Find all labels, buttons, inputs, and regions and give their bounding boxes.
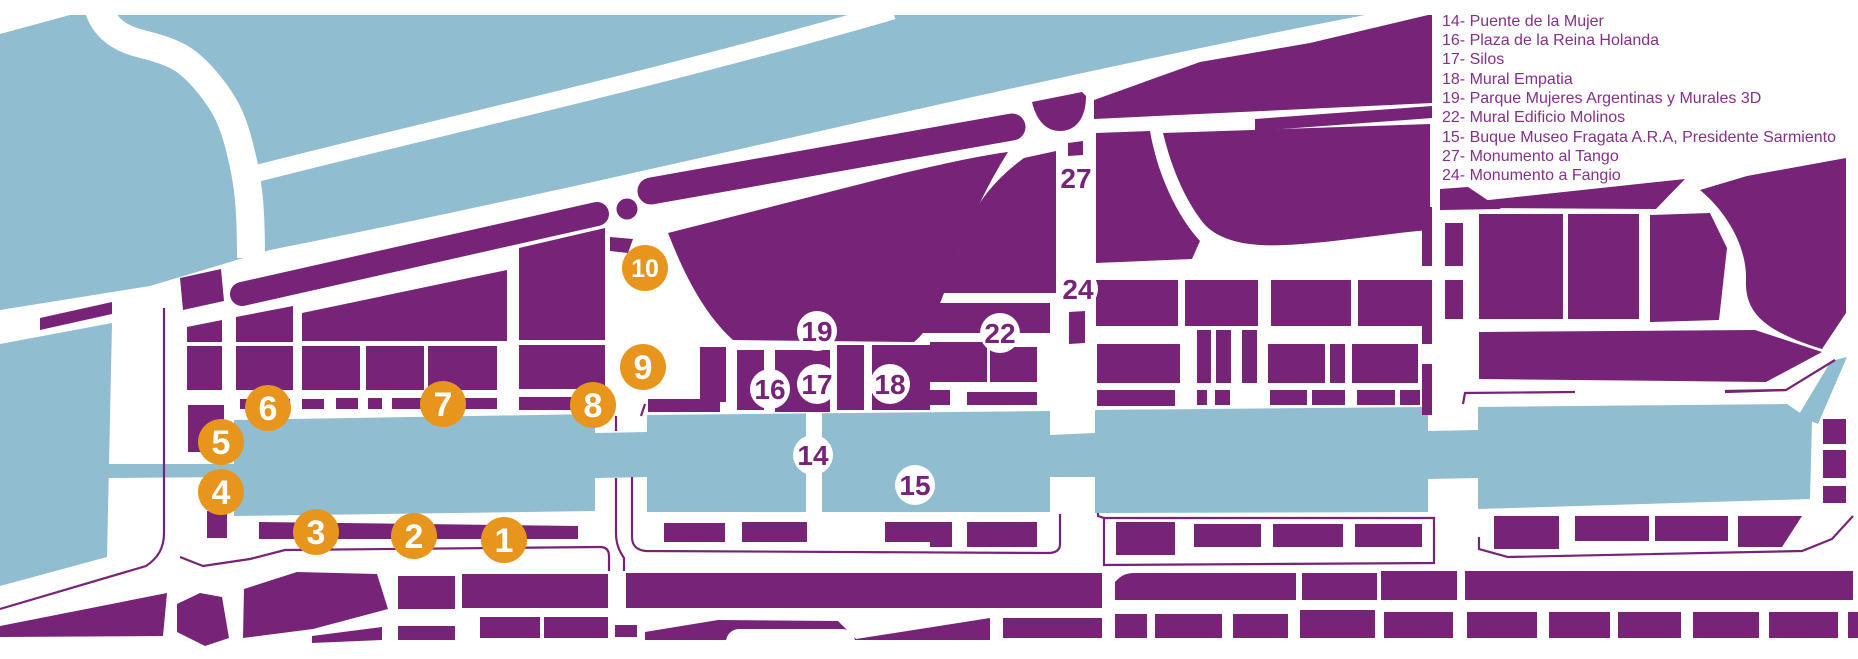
svg-text:5: 5 <box>212 424 231 462</box>
svg-text:27: 27 <box>1060 163 1091 194</box>
svg-text:10: 10 <box>631 255 659 283</box>
svg-text:6: 6 <box>259 390 278 428</box>
svg-text:7: 7 <box>434 386 453 424</box>
svg-text:17: 17 <box>801 369 832 400</box>
svg-text:16: 16 <box>754 374 785 405</box>
svg-text:14- Puente de la Mujer: 14- Puente de la Mujer <box>1442 13 1605 30</box>
svg-text:17- Silos: 17- Silos <box>1442 51 1504 68</box>
svg-text:1: 1 <box>495 522 514 560</box>
svg-text:2: 2 <box>405 518 424 556</box>
svg-text:27- Monumento al Tango: 27- Monumento al Tango <box>1442 148 1619 165</box>
svg-text:16- Plaza de la Reina Holanda: 16- Plaza de la Reina Holanda <box>1442 32 1659 49</box>
svg-text:24- Monumento a Fangio: 24- Monumento a Fangio <box>1442 167 1621 184</box>
svg-text:19: 19 <box>801 316 832 347</box>
svg-text:24: 24 <box>1062 274 1094 305</box>
svg-text:15- Buque Museo Fragata A.R.A,: 15- Buque Museo Fragata A.R.A, President… <box>1442 129 1836 146</box>
svg-text:14: 14 <box>797 440 829 471</box>
svg-text:8: 8 <box>584 387 603 425</box>
svg-text:3: 3 <box>307 514 326 552</box>
svg-text:15: 15 <box>899 470 930 501</box>
svg-text:22: 22 <box>984 318 1015 349</box>
svg-text:22- Mural Edificio Molinos: 22- Mural Edificio Molinos <box>1442 109 1625 126</box>
svg-text:19- Parque Mujeres Argentinas: 19- Parque Mujeres Argentinas y Murales … <box>1442 90 1761 107</box>
svg-text:9: 9 <box>634 349 653 387</box>
svg-text:18: 18 <box>874 369 905 400</box>
svg-text:4: 4 <box>212 474 231 512</box>
svg-text:18- Mural Empatia: 18- Mural Empatia <box>1442 71 1573 88</box>
